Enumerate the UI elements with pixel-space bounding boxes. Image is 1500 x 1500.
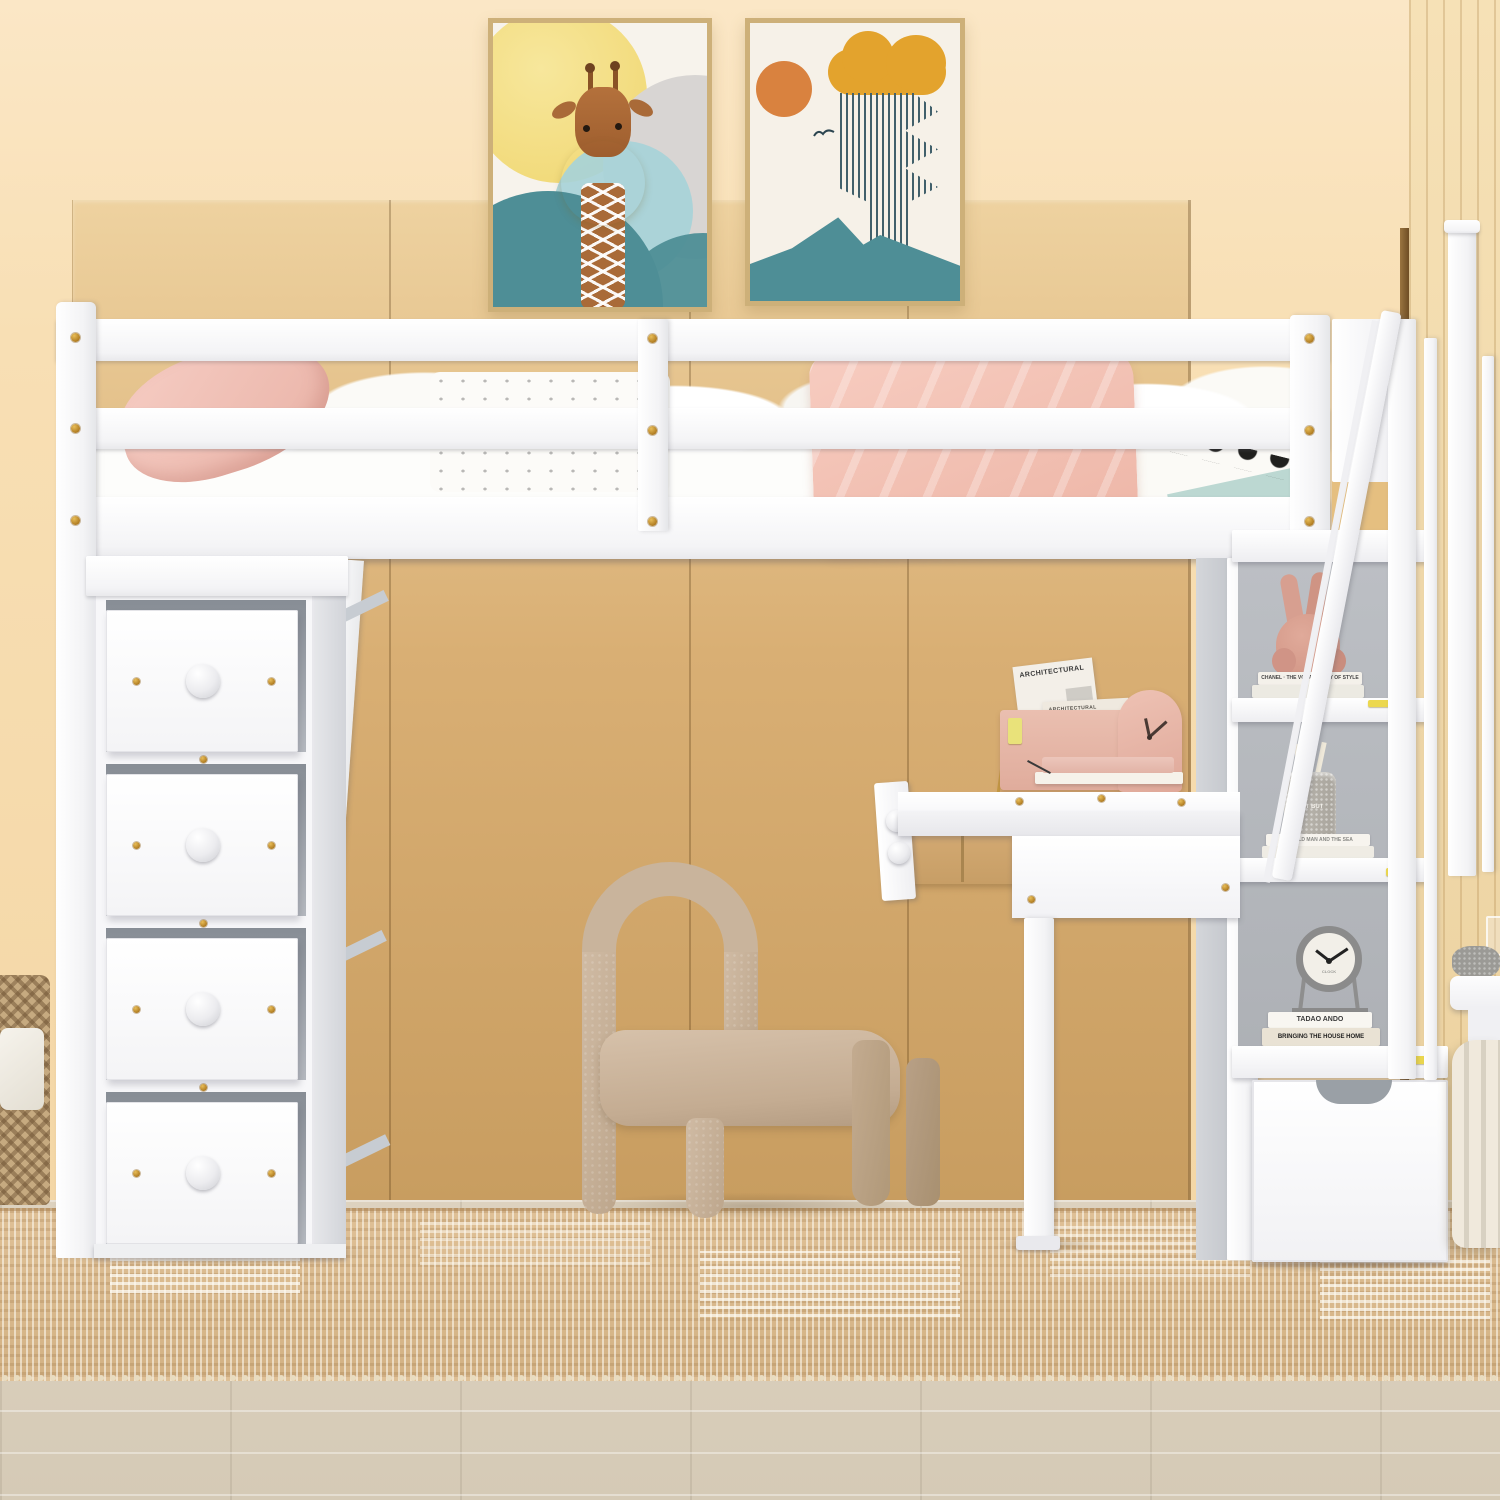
chair-rear-leg <box>906 1058 940 1206</box>
stone-decor <box>1452 946 1500 978</box>
book-on-desk-cover <box>1042 757 1174 773</box>
rug-pattern <box>420 1217 650 1265</box>
screw <box>71 424 80 433</box>
stair-storage-drawer <box>1252 1080 1448 1262</box>
screw <box>648 334 657 343</box>
drawer-knob <box>186 664 220 698</box>
screw <box>200 920 207 927</box>
desk-leg <box>1024 918 1054 1240</box>
stair-baluster <box>1424 338 1437 1080</box>
book-bringing-title: BRINGING THE HOUSE HOME <box>1262 1028 1380 1046</box>
basket-cloth <box>0 1028 44 1110</box>
giraffe-ossicone-knob <box>585 63 595 73</box>
chest-top <box>86 556 348 596</box>
chair-right-leg <box>852 1040 890 1206</box>
stair-baluster <box>1482 356 1494 872</box>
bed-guardrail-top <box>56 319 1330 361</box>
bunny-leg <box>1272 648 1296 674</box>
chair-front-leg <box>686 1118 724 1218</box>
screw <box>268 1170 275 1177</box>
screw <box>1305 426 1314 435</box>
screw <box>200 1084 207 1091</box>
chest-side-panel <box>314 594 346 1254</box>
poster-giraffe <box>488 18 712 312</box>
book-on-desk-pages <box>1035 772 1183 784</box>
desk-top-edge <box>898 812 1240 836</box>
drawer-knob <box>186 992 220 1026</box>
clock-center <box>1326 958 1332 964</box>
desk-top-surface <box>898 792 1240 814</box>
bed-guardrail-divider <box>638 319 668 531</box>
screw <box>648 517 657 526</box>
desk-foot <box>1016 1236 1060 1250</box>
shelf-clock: CLOCK <box>1296 926 1362 992</box>
desk-drawer-knob <box>888 842 910 864</box>
clock-face-label: CLOCK <box>1303 969 1355 974</box>
drawer-knob <box>186 1156 220 1190</box>
screw <box>71 333 80 342</box>
drawer-cutout-handle <box>1316 1080 1392 1104</box>
screw <box>133 842 140 849</box>
screw <box>1178 799 1185 806</box>
screw <box>1222 884 1229 891</box>
stair-stringer <box>1388 319 1416 1079</box>
screw <box>1305 334 1314 343</box>
poster-mountains <box>750 213 960 301</box>
kids-room-scene: CHANEL · THE VOCABULARY OF STYLE GUT BUT… <box>0 0 1500 1500</box>
giraffe-eye <box>583 125 590 132</box>
desk-apron <box>1012 836 1240 918</box>
screw <box>1305 517 1314 526</box>
giraffe-eye <box>615 123 622 130</box>
screw <box>268 678 275 685</box>
sticky-notes <box>1008 718 1022 744</box>
book-bringing: BRINGING THE HOUSE HOME <box>1262 1028 1380 1046</box>
screw <box>1016 798 1023 805</box>
book-tadao-title: TADAO ANDO <box>1268 1012 1372 1028</box>
screw <box>71 516 80 525</box>
poster-mountain <box>745 18 965 306</box>
ribbed-pouf <box>1452 1040 1500 1248</box>
giraffe-ossicone-knob <box>610 61 620 71</box>
magazine-title: ARCHITECTURAL <box>1019 664 1089 679</box>
bed-guardrail-middle <box>70 408 1330 449</box>
side-table-top <box>1450 976 1500 1010</box>
screw <box>133 1170 140 1177</box>
drawer-knob <box>186 828 220 862</box>
screw <box>200 756 207 763</box>
book-tadao: TADAO ANDO <box>1268 1012 1372 1028</box>
giraffe-bubble <box>561 141 645 225</box>
desk-clock-center <box>1147 735 1152 740</box>
screw <box>1028 896 1035 903</box>
screw <box>268 842 275 849</box>
poster-cloud <box>886 35 946 91</box>
bed-post-left <box>56 302 96 1258</box>
chest-base <box>94 1244 346 1258</box>
bed-frame-rail <box>70 497 1330 559</box>
stair-newel-post <box>1448 228 1476 876</box>
screw <box>133 1006 140 1013</box>
screw <box>268 1006 275 1013</box>
poster-bird <box>812 127 836 139</box>
screw <box>133 678 140 685</box>
screw <box>648 426 657 435</box>
stair-newel-cap <box>1444 220 1480 233</box>
screw <box>1098 795 1105 802</box>
poster-orange-sun <box>756 61 812 117</box>
rug-pattern <box>700 1251 960 1317</box>
